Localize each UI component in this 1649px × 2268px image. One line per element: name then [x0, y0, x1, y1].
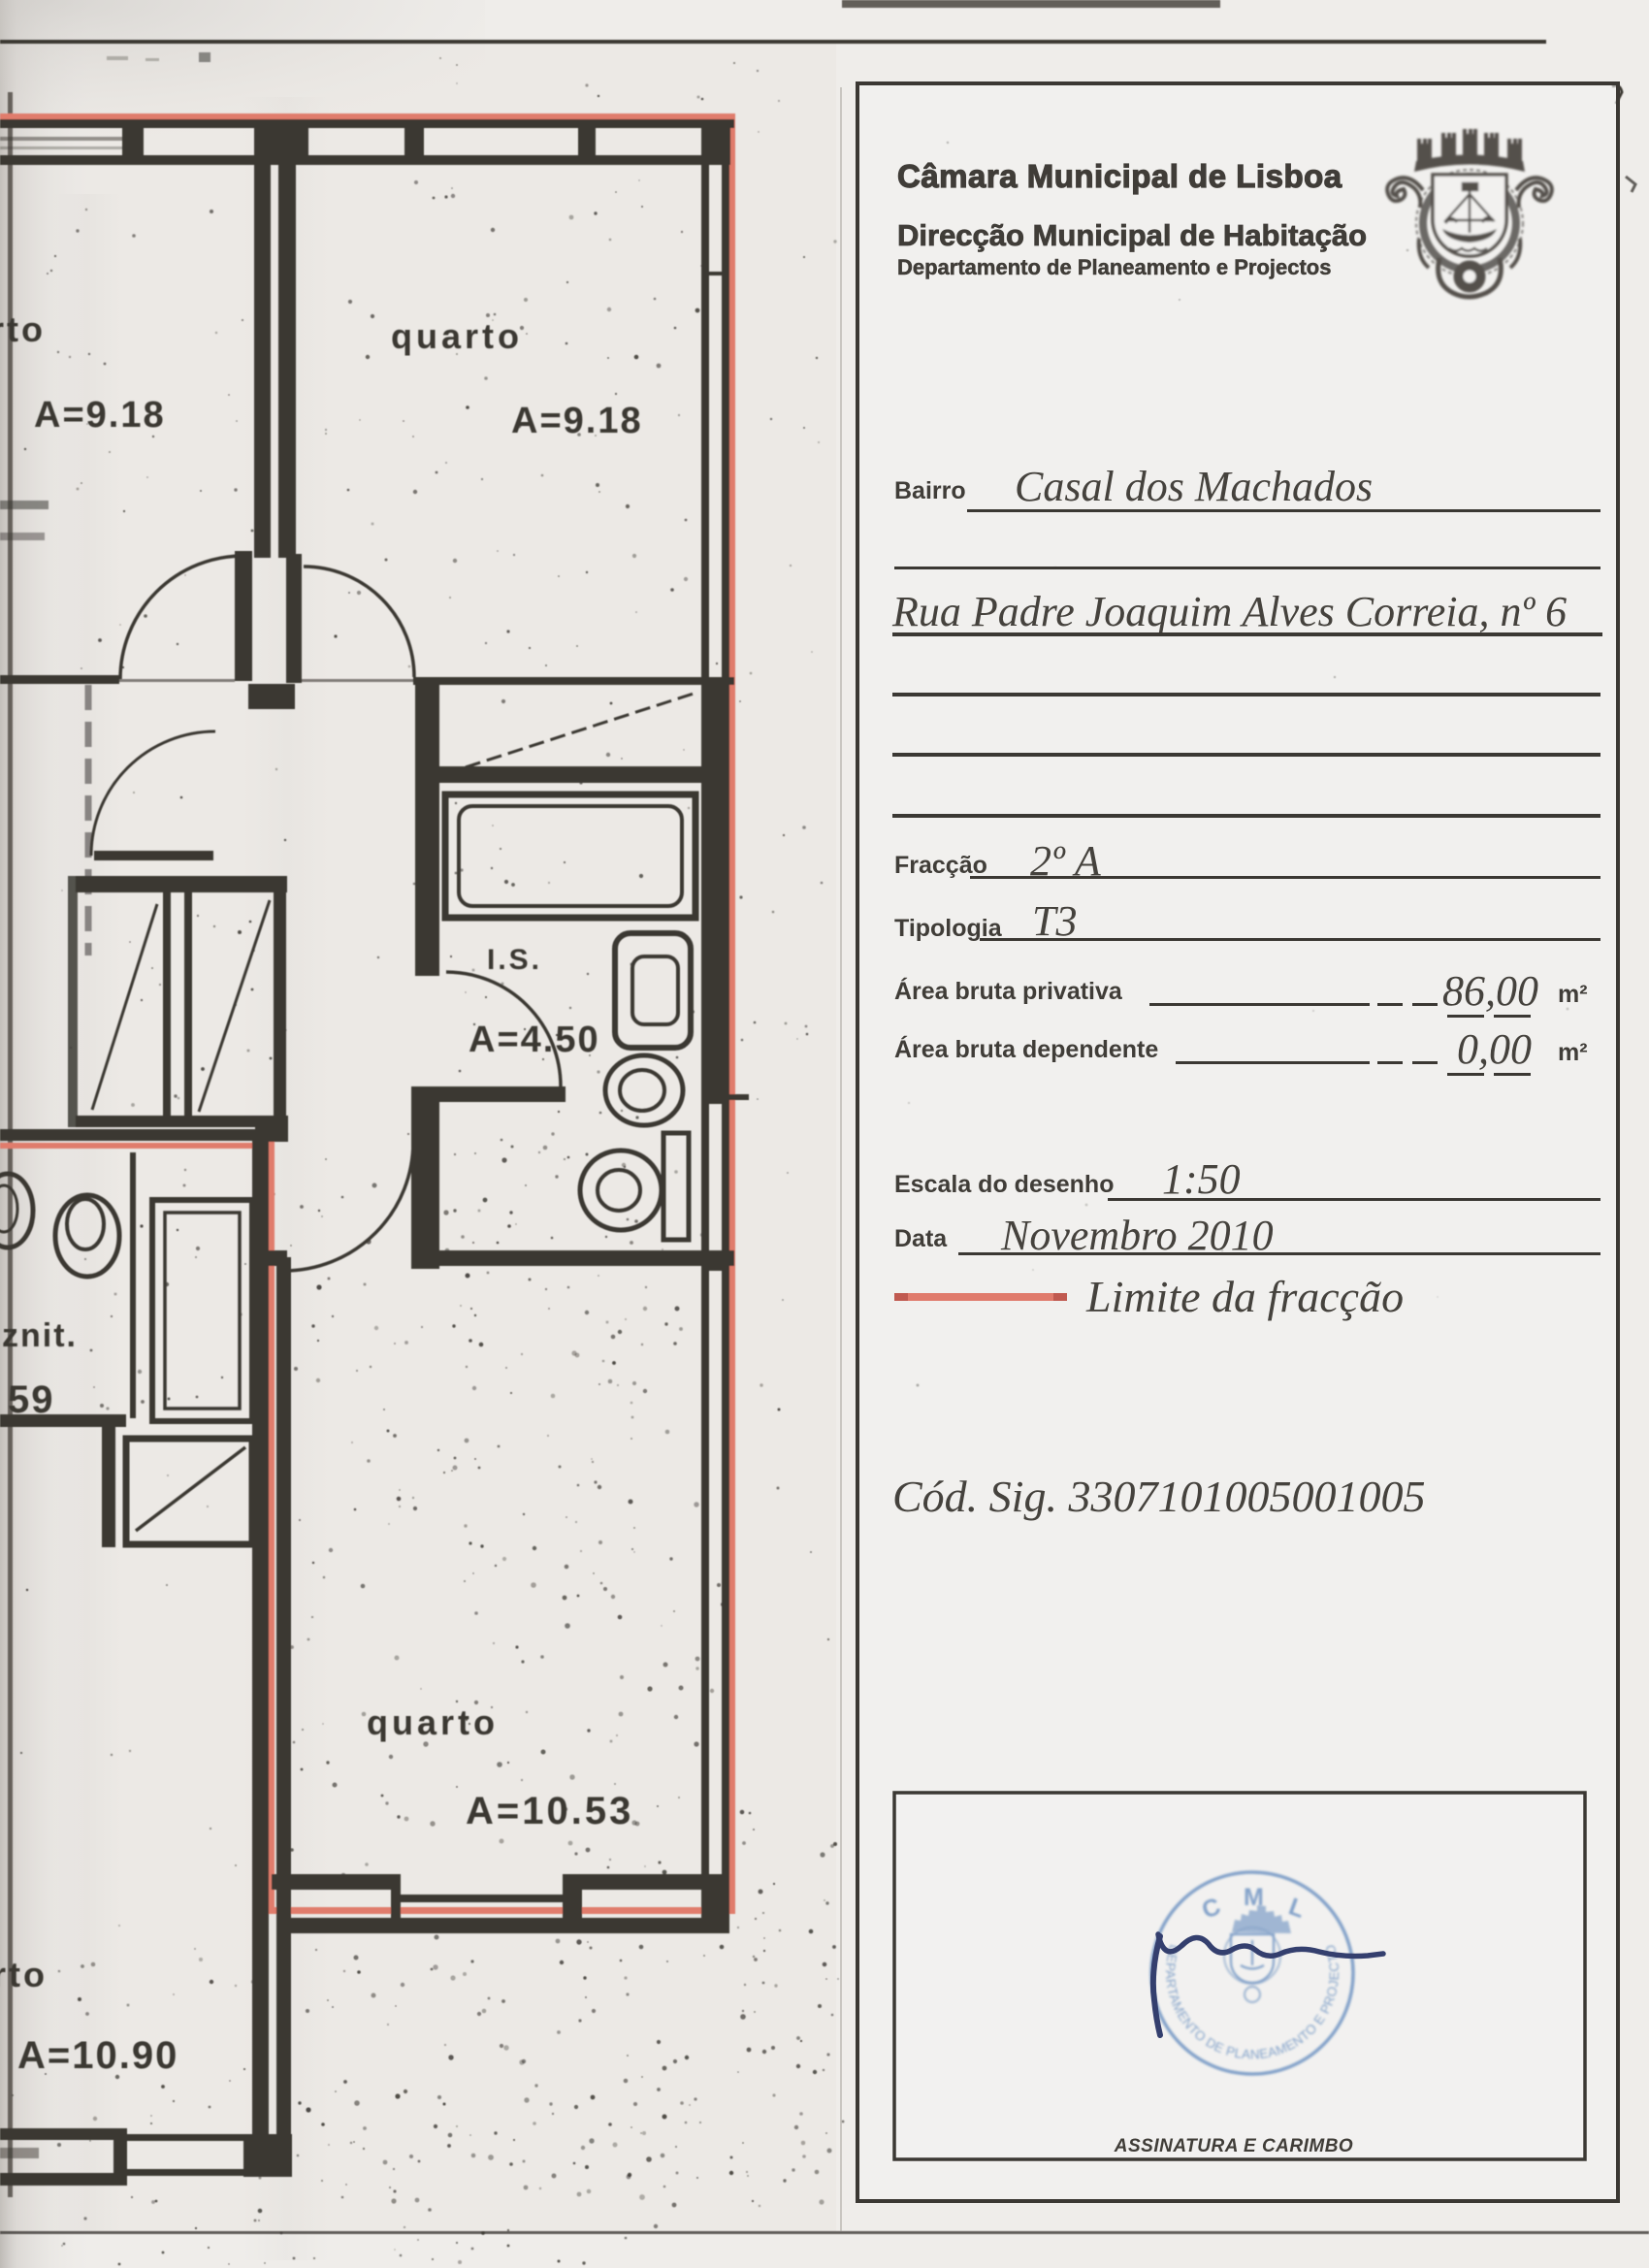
- svg-text:A=4.50: A=4.50: [469, 1020, 600, 1060]
- svg-text:A=9.18: A=9.18: [511, 401, 643, 441]
- svg-text:m²: m²: [1558, 981, 1588, 1008]
- svg-text:A=10.90: A=10.90: [17, 2034, 178, 2077]
- svg-text:quarto: quarto: [391, 316, 523, 356]
- svg-text:Limite da fracção: Limite da fracção: [1085, 1272, 1404, 1321]
- svg-text:m²: m²: [1558, 1039, 1588, 1066]
- svg-text:rto: rto: [0, 1955, 48, 1994]
- svg-text:A=10.53: A=10.53: [466, 1790, 633, 1832]
- svg-text:rto: rto: [0, 309, 46, 349]
- svg-text:T3: T3: [1032, 897, 1077, 945]
- svg-text:A=9.18: A=9.18: [34, 395, 166, 436]
- svg-text:Cód. Sig. 3307101005001005: Cód. Sig. 3307101005001005: [892, 1472, 1425, 1521]
- svg-text:Casal dos Machados: Casal dos Machados: [1015, 463, 1373, 510]
- svg-text:Novembro 2010: Novembro 2010: [1000, 1212, 1274, 1259]
- svg-text:Rua Padre Joaquim Alves Correi: Rua Padre Joaquim Alves Correia, nº 6: [891, 588, 1567, 635]
- svg-text:59: 59: [8, 1378, 55, 1421]
- svg-text:I.S.: I.S.: [487, 944, 542, 976]
- svg-text:Área bruta dependente: Área bruta dependente: [894, 1035, 1158, 1063]
- svg-text:0,00: 0,00: [1457, 1025, 1532, 1073]
- svg-text:86,00: 86,00: [1442, 967, 1538, 1015]
- svg-text:Tipologia: Tipologia: [894, 915, 1003, 942]
- svg-text:Área bruta privativa: Área bruta privativa: [894, 977, 1123, 1005]
- svg-text:znit.: znit.: [2, 1317, 78, 1354]
- svg-text:quarto: quarto: [367, 1702, 499, 1742]
- svg-text:Data: Data: [894, 1225, 948, 1252]
- svg-text:Departamento de Planeamento e: Departamento de Planeamento e Projectos: [897, 255, 1331, 279]
- svg-text:Fracção: Fracção: [894, 852, 987, 879]
- svg-text:Bairro: Bairro: [894, 477, 966, 504]
- svg-text:ASSINATURA E CARIMBO: ASSINATURA E CARIMBO: [1114, 2136, 1353, 2156]
- svg-text:Câmara Municipal de Lisboa: Câmara Municipal de Lisboa: [897, 158, 1342, 194]
- svg-text:1:50: 1:50: [1162, 1155, 1241, 1203]
- svg-text:Escala do desenho: Escala do desenho: [894, 1171, 1114, 1198]
- svg-text:Direcção Municipal de Habitaçã: Direcção Municipal de Habitação: [897, 218, 1367, 252]
